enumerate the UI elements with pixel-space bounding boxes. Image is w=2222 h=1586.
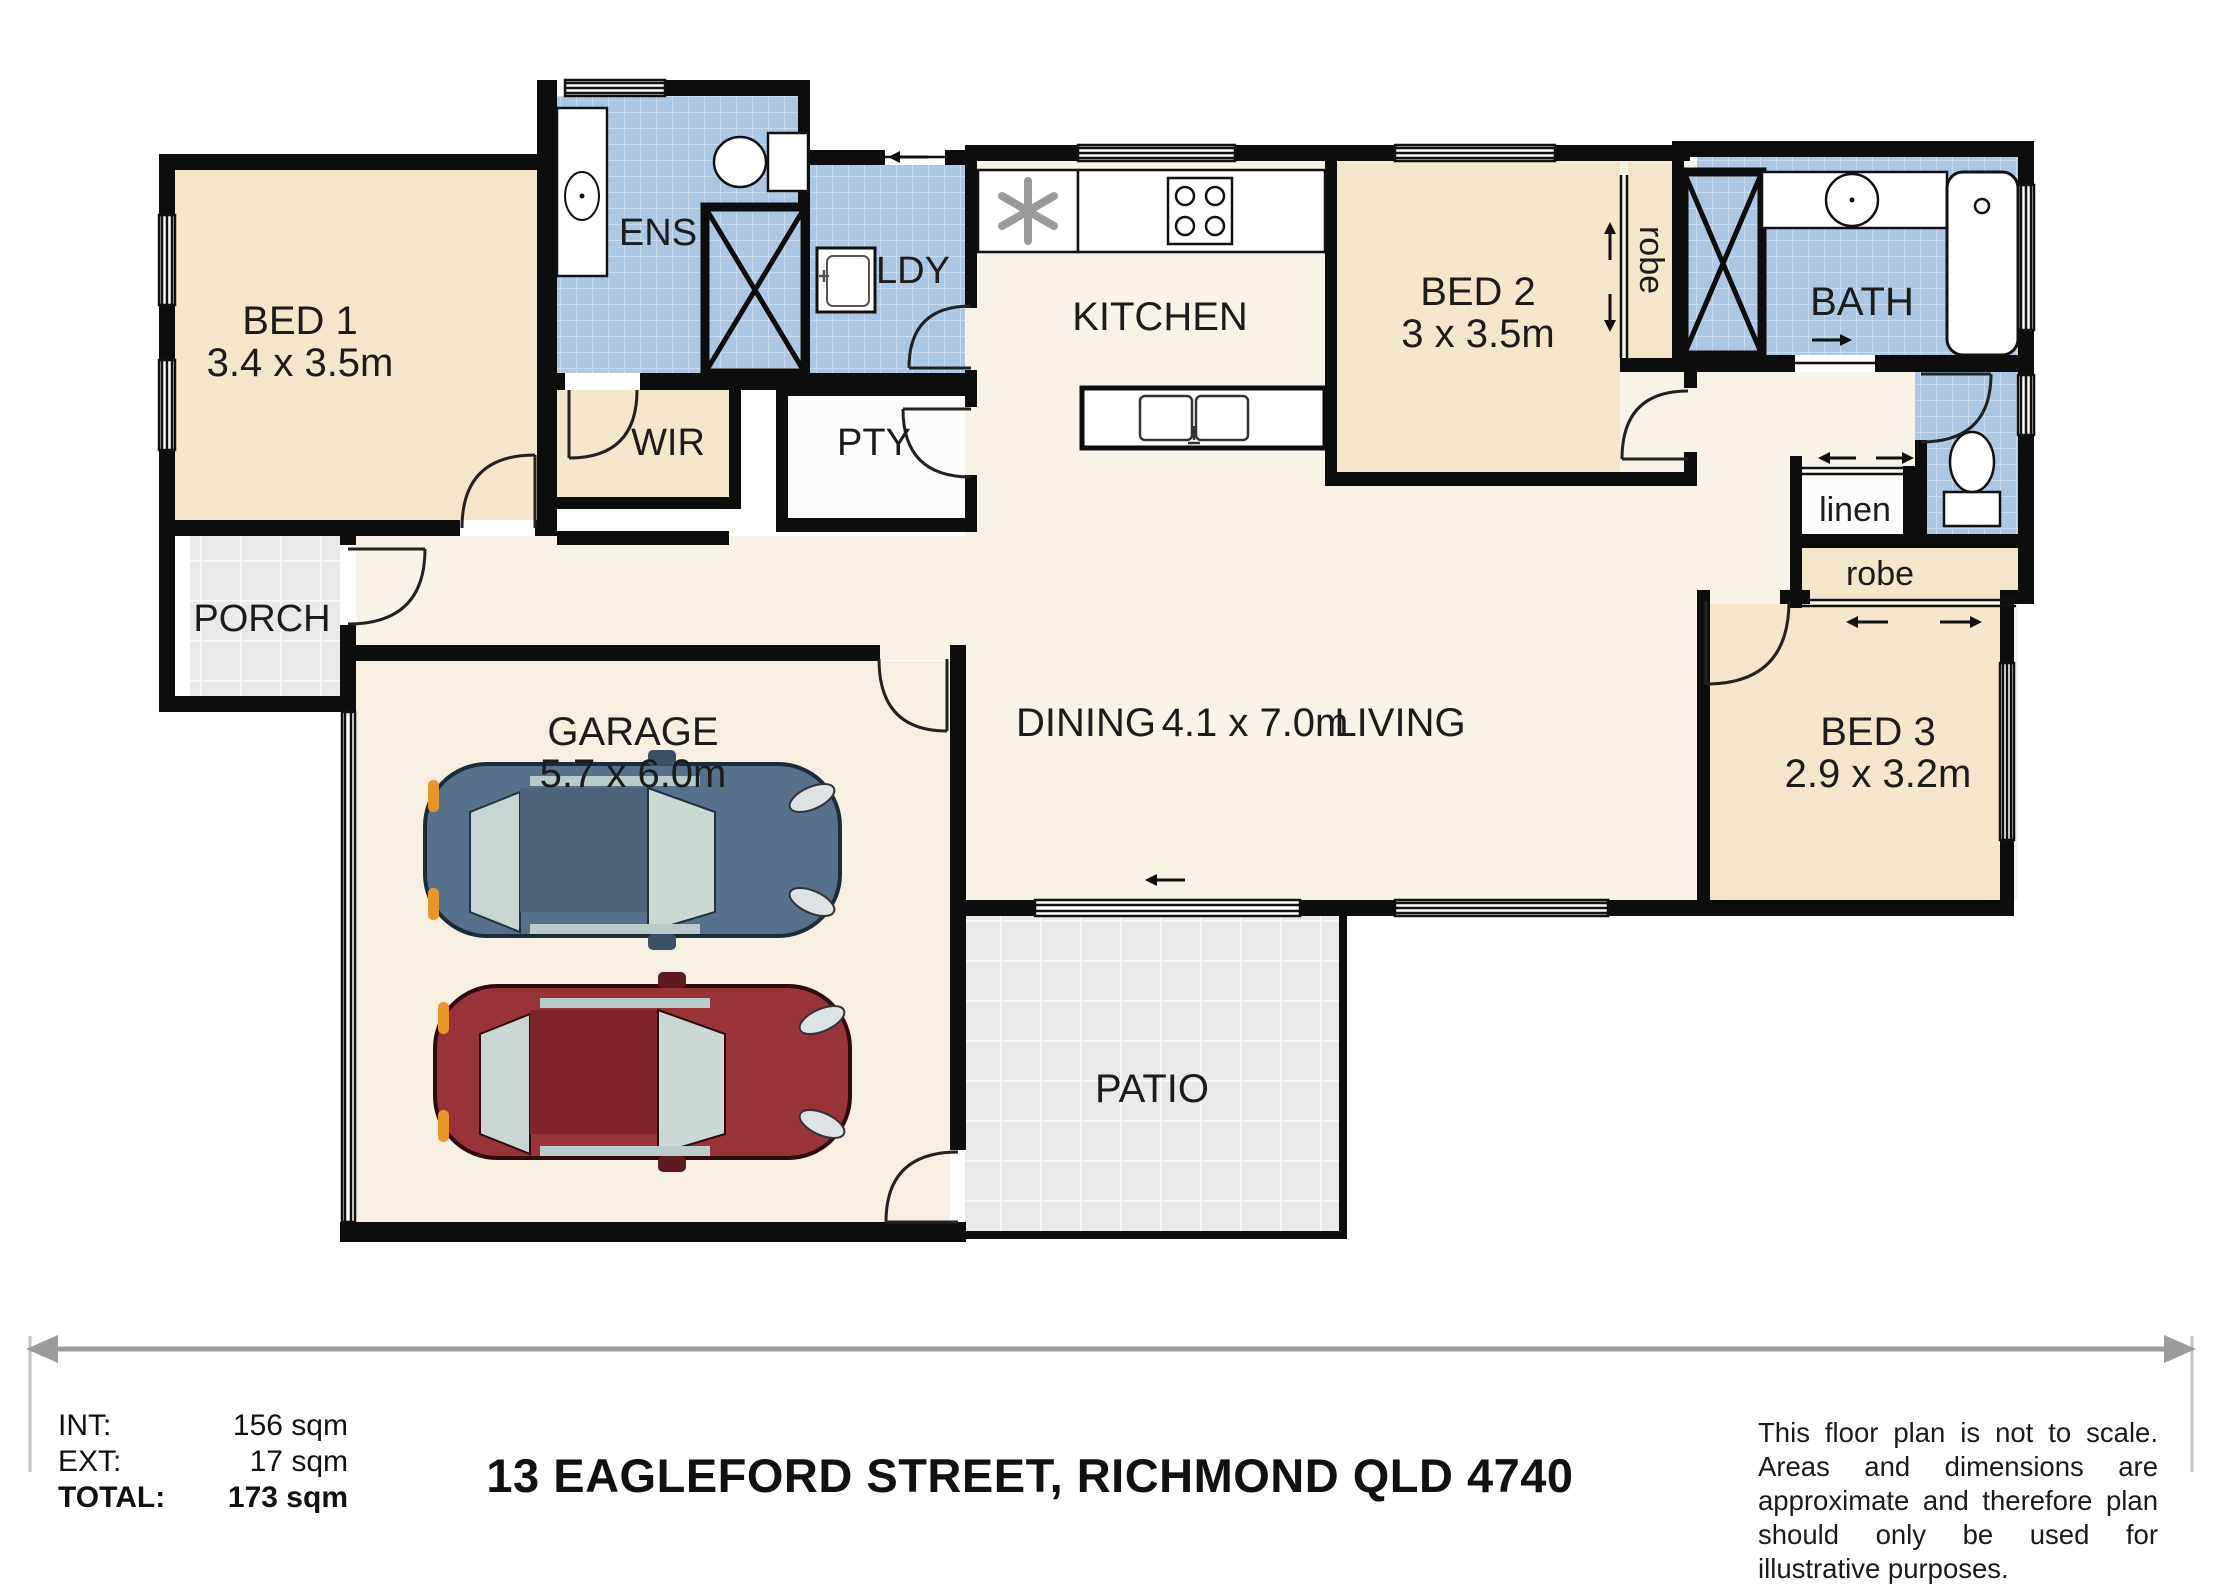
disclaimer-text: This floor plan is not to scale. Areas a…	[1758, 1416, 2158, 1586]
robe-bed3-label: robe	[1846, 555, 1914, 593]
patio-label: PATIO	[1095, 1067, 1209, 1111]
window-bed1-lower	[159, 360, 175, 450]
bed1-dims: 3.4 x 3.5m	[207, 341, 394, 385]
property-address: 13 EAGLEFORD STREET, RICHMOND QLD 4740	[0, 1448, 2060, 1503]
ens-label: ENS	[619, 212, 697, 254]
car-red-icon	[435, 972, 850, 1172]
kitchen-label: KITCHEN	[1072, 295, 1248, 339]
window-wc	[2018, 375, 2034, 435]
area-int-label: INT:	[58, 1408, 111, 1444]
bath-label: BATH	[1810, 280, 1914, 324]
robe-bed2-label: robe	[1632, 226, 1670, 294]
wir-label: WIR	[631, 422, 705, 464]
floor-plan-page: BED 1 3.4 x 3.5m ENS LDY WIR PTY KITCHEN…	[0, 0, 2222, 1571]
entry-hall-floor	[356, 536, 976, 660]
porch-label: PORCH	[193, 598, 330, 640]
sliding-door-bath-entry	[1795, 355, 1875, 372]
ldy-label: LDY	[876, 250, 950, 292]
window-bed1-upper	[159, 215, 175, 305]
bed3-dims: 2.9 x 3.2m	[1785, 752, 1972, 796]
shower-icon-ens	[705, 207, 805, 373]
vanity-basin-icon-ens	[557, 108, 607, 276]
cooktop-icon	[1078, 170, 1325, 252]
dining-label: DINING	[1016, 701, 1156, 745]
living-label: LIVING	[1334, 701, 1465, 745]
bed3-label: BED 3	[1820, 710, 1936, 754]
bed2-label: BED 2	[1420, 270, 1536, 314]
linen-label: linen	[1819, 491, 1891, 529]
bathtub-icon	[1947, 172, 2018, 355]
garage-dims: 5.7 x 6.0m	[540, 752, 727, 796]
window-bed2	[1395, 145, 1555, 161]
area-row-int: INT: 156 sqm	[58, 1408, 348, 1444]
window-bed3	[2000, 663, 2014, 840]
area-int-value: 156 sqm	[233, 1408, 348, 1444]
pty-label: PTY	[837, 422, 911, 464]
bed2-dims: 3 x 3.5m	[1401, 312, 1554, 356]
sliding-door-living	[1395, 900, 1608, 916]
living-dining-dims: 4.1 x 7.0m	[1162, 701, 1349, 745]
window-ens	[565, 80, 665, 96]
island-bench	[1082, 388, 1325, 448]
vanity-basin-icon-bath	[1762, 172, 1947, 228]
window-garage-side	[342, 712, 355, 1222]
shower-icon-bath	[1684, 172, 1762, 355]
garage-label: GARAGE	[547, 710, 718, 754]
window-bath	[2018, 185, 2034, 330]
window-kitchen	[1078, 145, 1235, 161]
bed1-label: BED 1	[242, 299, 358, 343]
laundry-tub-icon	[817, 248, 875, 312]
ceiling-fan-icon	[978, 170, 1078, 252]
floor-plan: BED 1 3.4 x 3.5m ENS LDY WIR PTY KITCHEN…	[0, 0, 2222, 1571]
sliding-door-patio	[1035, 900, 1300, 916]
